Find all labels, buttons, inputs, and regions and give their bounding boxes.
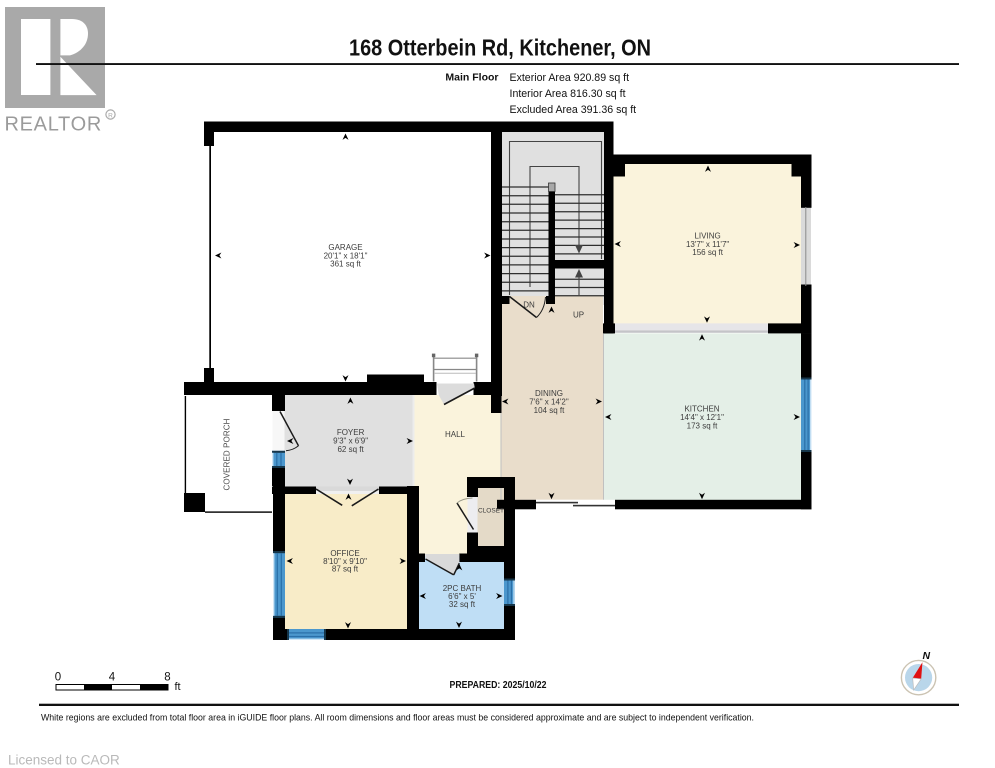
svg-text:N: N: [923, 650, 931, 662]
svg-text:UP: UP: [573, 311, 584, 320]
svg-text:HALL: HALL: [445, 430, 466, 439]
svg-text:White regions are excluded fro: White regions are excluded from total fl…: [41, 713, 754, 723]
svg-text:173 sq ft: 173 sq ft: [687, 421, 718, 430]
svg-text:104 sq ft: 104 sq ft: [534, 406, 565, 415]
svg-text:361 sq ft: 361 sq ft: [330, 259, 361, 268]
svg-text:8: 8: [164, 672, 170, 684]
svg-text:REALTOR: REALTOR: [5, 114, 103, 136]
svg-text:168 Otterbein Rd, Kitchener, O: 168 Otterbein Rd, Kitchener, ON: [349, 35, 651, 61]
svg-text:62 sq ft: 62 sq ft: [337, 445, 364, 454]
svg-text:ft: ft: [175, 681, 181, 693]
svg-text:0: 0: [55, 672, 61, 684]
svg-text:PREPARED: 2025/10/22: PREPARED: 2025/10/22: [450, 680, 547, 691]
svg-text:CLOSET: CLOSET: [478, 508, 504, 515]
svg-text:Interior Area 816.30 sq ft: Interior Area 816.30 sq ft: [510, 88, 626, 100]
svg-text:COVERED PORCH: COVERED PORCH: [223, 418, 232, 490]
svg-text:32 sq ft: 32 sq ft: [449, 600, 476, 609]
svg-text:Excluded Area 391.36 sq ft: Excluded Area 391.36 sq ft: [510, 104, 637, 116]
svg-text:R: R: [108, 112, 113, 119]
svg-text:87 sq ft: 87 sq ft: [332, 565, 359, 574]
svg-text:Exterior Area 920.89 sq ft: Exterior Area 920.89 sq ft: [510, 72, 630, 84]
svg-text:Main Floor: Main Floor: [445, 72, 498, 84]
svg-text:156 sq ft: 156 sq ft: [692, 248, 723, 257]
svg-text:Licensed to CAOR: Licensed to CAOR: [8, 753, 120, 768]
svg-text:4: 4: [109, 672, 116, 684]
